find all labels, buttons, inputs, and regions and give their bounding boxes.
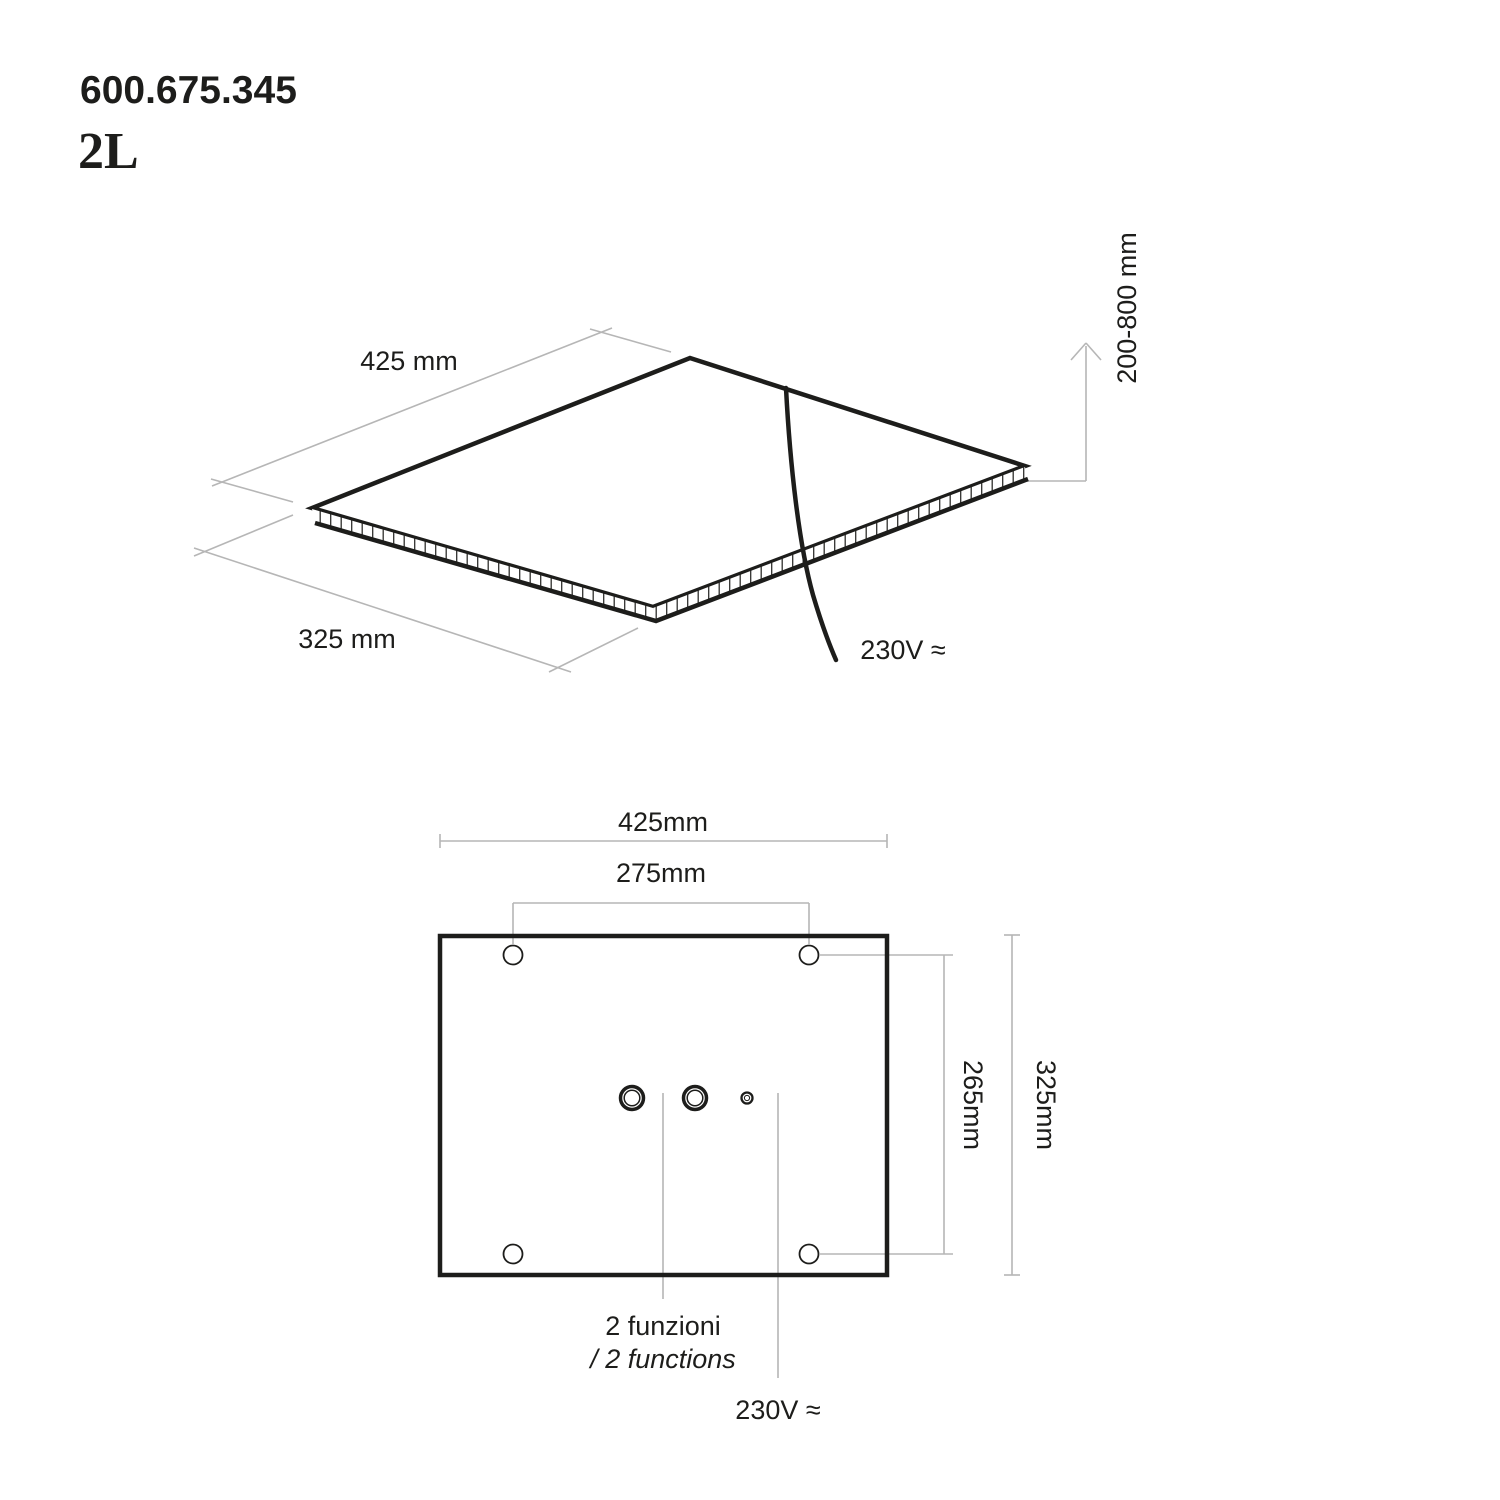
extension-line xyxy=(549,628,638,672)
iso-depth-label: 325 mm xyxy=(298,624,396,654)
functions-label-italian: 2 funzioni xyxy=(605,1311,721,1341)
iso-width-label: 425 mm xyxy=(360,346,458,376)
plan-overall-width-label: 425mm xyxy=(618,807,708,837)
panel-top-surface xyxy=(312,358,1025,607)
mounting-hole-bottom-left xyxy=(504,1245,523,1264)
product-code: 600.675.345 xyxy=(80,69,297,112)
plan-hole-spacing-y-label: 265mm xyxy=(958,1060,988,1150)
mounting-hole-top-left xyxy=(504,946,523,965)
height-arrow-head xyxy=(1086,343,1101,360)
plan-dimension-lines xyxy=(440,834,1020,1378)
variant-code: 2L xyxy=(78,123,139,180)
plan-view: 425mm 275mm 265mm 325mm 2 funzioni / 2 f… xyxy=(440,807,1061,1425)
height-arrow-head xyxy=(1071,343,1086,360)
spec-sheet-page: 600.675.345 2L xyxy=(0,0,1500,1500)
technical-drawing: 600.675.345 2L xyxy=(0,0,1500,1500)
plan-overall-height-label: 325mm xyxy=(1031,1060,1061,1150)
functions-label-english: / 2 functions xyxy=(588,1344,736,1374)
extension-line xyxy=(211,479,293,502)
extension-line xyxy=(194,515,293,556)
iso-power-label: 230V ≈ xyxy=(860,635,946,665)
iso-height-range-label: 200-800 mm xyxy=(1112,232,1142,384)
plan-hole-spacing-x-label: 275mm xyxy=(616,858,706,888)
plan-power-label: 230V ≈ xyxy=(735,1395,821,1425)
iso-view: 425 mm 325 mm 200-800 mm 230V ≈ xyxy=(194,232,1142,672)
mounting-hole-bottom-right xyxy=(800,1245,819,1264)
power-entry-hole xyxy=(742,1093,753,1104)
mounting-hole-top-right xyxy=(800,946,819,965)
